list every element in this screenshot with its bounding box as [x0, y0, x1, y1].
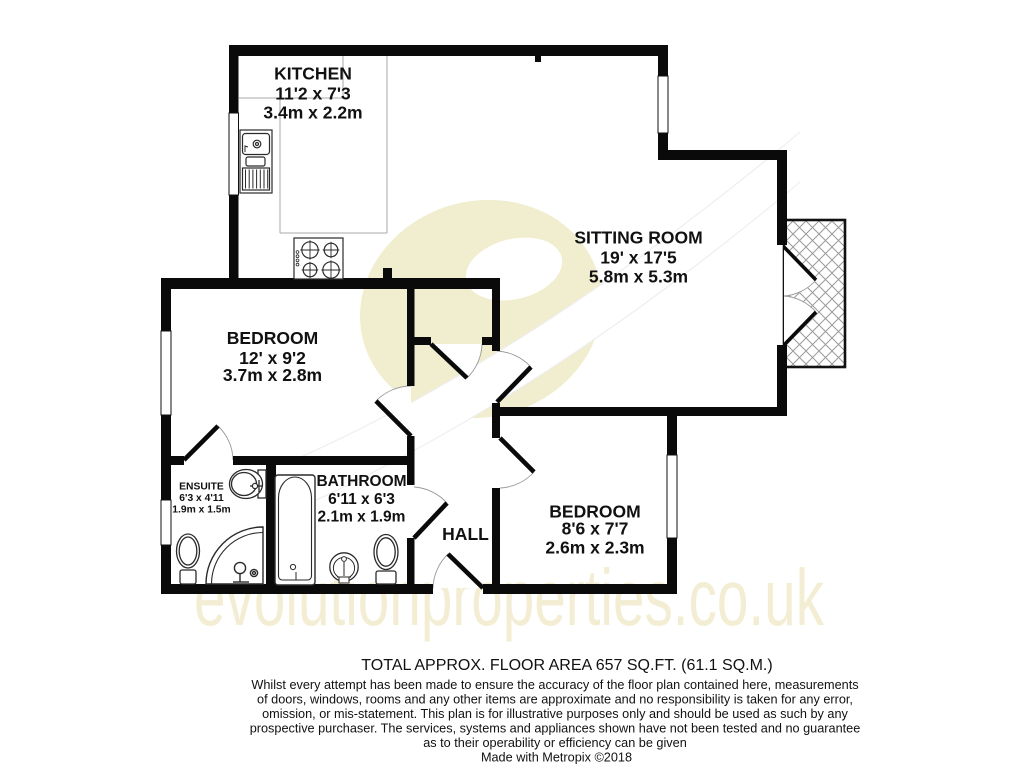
- svg-text:8'6 x 7'7: 8'6 x 7'7: [562, 519, 629, 539]
- svg-text:omission, or mis-statement. Th: omission, or mis-statement. This plan is…: [262, 707, 848, 721]
- svg-text:Made with Metropix ©2018: Made with Metropix ©2018: [481, 751, 632, 765]
- svg-text:SITTING ROOM: SITTING ROOM: [574, 228, 702, 248]
- svg-text:6'3 x 4'11: 6'3 x 4'11: [179, 493, 224, 504]
- svg-text:6'11 x 6'3: 6'11 x 6'3: [328, 491, 395, 508]
- svg-text:2.1m x 1.9m: 2.1m x 1.9m: [318, 509, 406, 526]
- svg-text:3.7m x 2.8m: 3.7m x 2.8m: [223, 365, 322, 385]
- svg-text:of doors, windows, rooms and a: of doors, windows, rooms and any other i…: [257, 693, 853, 707]
- svg-text:ENSUITE: ENSUITE: [179, 482, 224, 493]
- svg-text:as to their operability or eff: as to their operability or efficiency ca…: [423, 736, 687, 750]
- svg-text:5.8m x 5.3m: 5.8m x 5.3m: [589, 267, 688, 287]
- svg-text:Whilst every attempt has been: Whilst every attempt has been made to en…: [251, 678, 858, 692]
- svg-text:19' x 17'5: 19' x 17'5: [600, 248, 677, 268]
- svg-text:1.9m x 1.5m: 1.9m x 1.5m: [172, 505, 230, 516]
- svg-text:2.6m x 2.3m: 2.6m x 2.3m: [545, 538, 644, 558]
- svg-text:HALL: HALL: [442, 524, 489, 544]
- svg-text:KITCHEN: KITCHEN: [274, 64, 352, 84]
- svg-text:3.4m x 2.2m: 3.4m x 2.2m: [263, 103, 362, 123]
- svg-text:TOTAL APPROX. FLOOR AREA 657 S: TOTAL APPROX. FLOOR AREA 657 SQ.FT. (61.…: [361, 657, 772, 674]
- svg-text:BATHROOM: BATHROOM: [316, 473, 406, 490]
- svg-text:11'2 x 7'3: 11'2 x 7'3: [275, 84, 351, 104]
- svg-text:BEDROOM: BEDROOM: [227, 328, 318, 348]
- svg-text:prospective purchaser. The ser: prospective purchaser. The services, sys…: [250, 722, 861, 736]
